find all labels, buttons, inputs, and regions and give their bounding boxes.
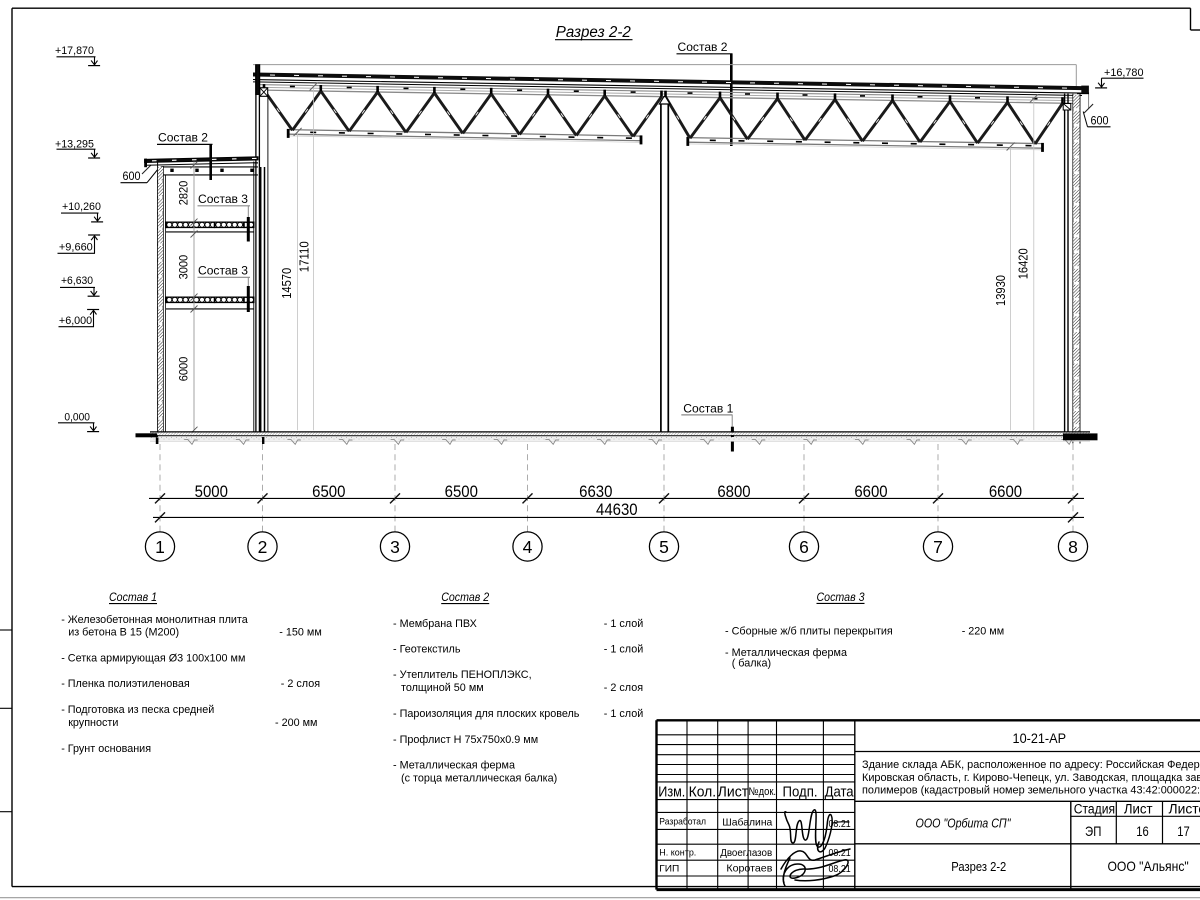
svg-text:2: 2 — [258, 537, 268, 557]
svg-text:6600: 6600 — [854, 483, 887, 501]
svg-text:Кол.: Кол. — [689, 784, 717, 801]
svg-text:Н. контр.: Н. контр. — [659, 848, 696, 858]
svg-text:- Подготовка из песка средней: - Подготовка из песка средней — [61, 704, 214, 716]
svg-text:- 1 слой: - 1 слой — [604, 618, 643, 630]
svg-text:Подп.: Подп. — [783, 784, 818, 801]
svg-text:Состав 3: Состав 3 — [198, 263, 248, 277]
svg-text:- 150 мм: - 150 мм — [279, 627, 321, 639]
svg-text:17110: 17110 — [296, 241, 311, 272]
svg-text:+16,780: +16,780 — [1104, 67, 1144, 79]
svg-text:Двоеглазов: Двоеглазов — [720, 848, 772, 859]
svg-text:13930: 13930 — [993, 275, 1008, 306]
svg-text:1: 1 — [155, 537, 165, 557]
svg-text:7: 7 — [933, 537, 943, 557]
svg-text:6800: 6800 — [717, 483, 750, 501]
svg-text:3000: 3000 — [177, 255, 191, 280]
svg-text:+6,630: +6,630 — [61, 275, 93, 287]
svg-text:- Сборные ж/б плиты перекрытия: - Сборные ж/б плиты перекрытия — [725, 626, 893, 638]
svg-text:- Пароизоляция для плоских кро: - Пароизоляция для плоских кровель — [393, 708, 580, 720]
svg-text:+6,000: +6,000 — [59, 315, 92, 327]
svg-text:Шабалина: Шабалина — [722, 817, 772, 829]
svg-text:Разрез 2-2: Разрез 2-2 — [556, 24, 631, 41]
svg-text:+13,295: +13,295 — [55, 138, 94, 150]
svg-text:+17,870: +17,870 — [55, 45, 94, 57]
svg-text:- 2 слоя: - 2 слоя — [604, 682, 643, 694]
svg-text:крупности: крупности — [68, 717, 118, 729]
svg-text:из бетона В 15 (М200): из бетона В 15 (М200) — [68, 627, 179, 639]
svg-text:Состав 1: Состав 1 — [683, 402, 733, 416]
svg-text:ООО "Альянс": ООО "Альянс" — [1107, 859, 1188, 874]
svg-text:Кировская область, г. Кирово-Ч: Кировская область, г. Кирово-Чепецк, ул.… — [862, 772, 1200, 784]
svg-text:Состав 3: Состав 3 — [817, 590, 865, 604]
svg-text:Лист: Лист — [718, 784, 749, 801]
svg-text:Коротаев: Коротаев — [726, 863, 772, 874]
svg-text:- 200 мм: - 200 мм — [275, 717, 317, 729]
svg-text:6500: 6500 — [312, 483, 345, 501]
svg-text:+10,260: +10,260 — [62, 201, 101, 213]
svg-text:Листов: Листов — [1169, 801, 1200, 816]
svg-text:Разработал: Разработал — [659, 817, 706, 827]
svg-text:16420: 16420 — [1015, 248, 1030, 279]
svg-text:17: 17 — [1177, 824, 1190, 839]
svg-text:Стадия: Стадия — [1074, 801, 1115, 816]
svg-text:16: 16 — [1136, 824, 1149, 839]
svg-text:ЭП: ЭП — [1085, 824, 1101, 839]
svg-text:- Сетка армирующая Ø3 100х100: - Сетка армирующая Ø3 100х100 мм — [61, 652, 245, 664]
svg-text:6: 6 — [799, 537, 809, 557]
svg-text:8: 8 — [1068, 537, 1078, 557]
svg-text:полимеров (кадастровый номер з: полимеров (кадастровый номер земельного … — [862, 784, 1200, 796]
svg-text:- Геотекстиль: - Геотекстиль — [393, 643, 461, 655]
svg-text:0,000: 0,000 — [64, 411, 90, 423]
svg-text:( балка): ( балка) — [732, 657, 771, 669]
svg-text:- Грунт основания: - Грунт основания — [61, 743, 151, 755]
svg-text:6000: 6000 — [177, 356, 191, 381]
svg-text:Состав 2: Состав 2 — [441, 590, 489, 604]
svg-text:600: 600 — [1091, 116, 1109, 128]
svg-text:+9,660: +9,660 — [59, 242, 93, 254]
svg-text:Состав 2: Состав 2 — [158, 131, 208, 145]
svg-text:(с торца металлическая балка): (с торца металлическая балка) — [401, 773, 557, 785]
svg-text:4: 4 — [523, 537, 533, 557]
svg-text:толщиной 50 мм: толщиной 50 мм — [401, 682, 484, 694]
svg-text:Здание склада АБК, расположенн: Здание склада АБК, расположенное по адре… — [862, 759, 1200, 771]
svg-text:3: 3 — [390, 537, 400, 557]
svg-text:14570: 14570 — [279, 268, 294, 299]
svg-text:5: 5 — [659, 537, 669, 557]
svg-text:6600: 6600 — [989, 483, 1022, 501]
svg-text:- 2 слоя: - 2 слоя — [281, 678, 320, 690]
svg-text:Лист: Лист — [1124, 801, 1153, 816]
svg-text:- Профлист Н 75х750х0.9 мм: - Профлист Н 75х750х0.9 мм — [393, 734, 538, 746]
svg-text:- 1 слой: - 1 слой — [604, 643, 643, 655]
svg-text:- Железобетонная монолитная п: - Железобетонная монолитная плита — [61, 614, 248, 626]
svg-text:ООО "Орбита СП": ООО "Орбита СП" — [916, 816, 1011, 830]
svg-text:- Мембрана ПВХ: - Мембрана ПВХ — [393, 618, 477, 630]
svg-text:600: 600 — [123, 171, 141, 183]
svg-text:Изм.: Изм. — [658, 784, 685, 801]
svg-text:- 220 мм: - 220 мм — [962, 626, 1004, 638]
svg-text:2820: 2820 — [177, 180, 191, 205]
svg-text:- Металлическая ферма: - Металлическая ферма — [393, 759, 515, 771]
svg-text:6500: 6500 — [445, 483, 478, 501]
svg-text:6630: 6630 — [579, 483, 612, 501]
svg-text:- 1 слой: - 1 слой — [604, 708, 643, 720]
svg-text:- Утеплитель ПЕНОПЛЭКС,: - Утеплитель ПЕНОПЛЭКС, — [393, 669, 532, 681]
svg-text:Состав 2: Состав 2 — [678, 40, 728, 54]
svg-text:5000: 5000 — [195, 483, 228, 501]
svg-text:№док.: №док. — [749, 786, 777, 798]
svg-text:Дата: Дата — [825, 784, 855, 801]
svg-text:Разрез 2-2: Разрез 2-2 — [951, 860, 1006, 874]
svg-text:Состав 3: Состав 3 — [198, 192, 248, 206]
svg-text:44630: 44630 — [596, 501, 638, 519]
svg-text:10-21-АР: 10-21-АР — [1013, 730, 1067, 746]
svg-text:Состав 1: Состав 1 — [109, 590, 157, 604]
svg-text:ГИП: ГИП — [659, 863, 679, 873]
svg-text:- Пленка полиэтиленовая: - Пленка полиэтиленовая — [61, 678, 190, 690]
